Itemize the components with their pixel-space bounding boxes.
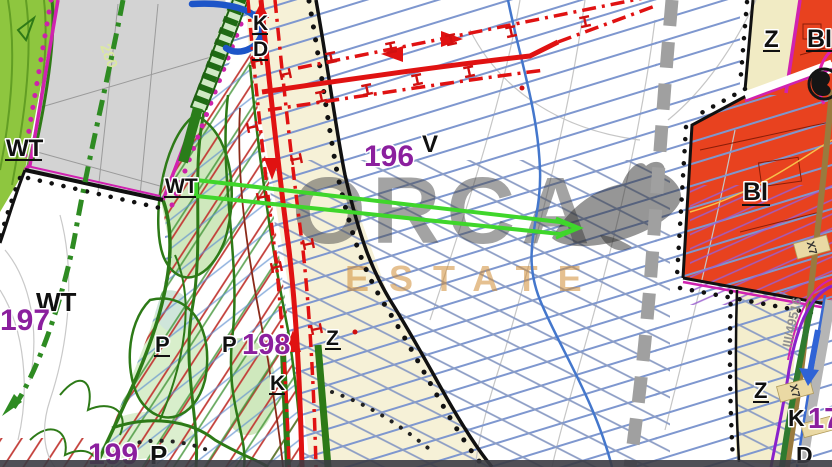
parcel-198-label: 198 (242, 329, 290, 361)
bi-top-right-label: BI (807, 25, 832, 53)
wt-mid-label: WT (165, 175, 198, 198)
wt-upper-label: WT (6, 135, 44, 162)
bi-right-label: BI (743, 178, 768, 206)
k-center-label: K (270, 372, 285, 395)
p-center-label: P (222, 332, 237, 357)
watermark-subtitle: ESTATE (345, 258, 602, 299)
p-left-label: P (155, 332, 170, 357)
k-top-label: K (253, 12, 268, 35)
z-bottom-right-label: Z (754, 378, 767, 403)
parcel-17-label: 17 (808, 403, 832, 435)
bottom-bar (0, 460, 832, 467)
parcel-197-label: 197 (0, 304, 50, 337)
z-center-label: Z (326, 327, 339, 350)
parcel-196-label: 196 (364, 140, 414, 173)
z-top-right-label: Z (764, 26, 779, 53)
zone-v-label: V (422, 131, 438, 158)
zoning-map: 280 (0, 0, 832, 467)
d-top-label: D (253, 38, 268, 61)
k-bottom-right-label: K (788, 405, 805, 431)
